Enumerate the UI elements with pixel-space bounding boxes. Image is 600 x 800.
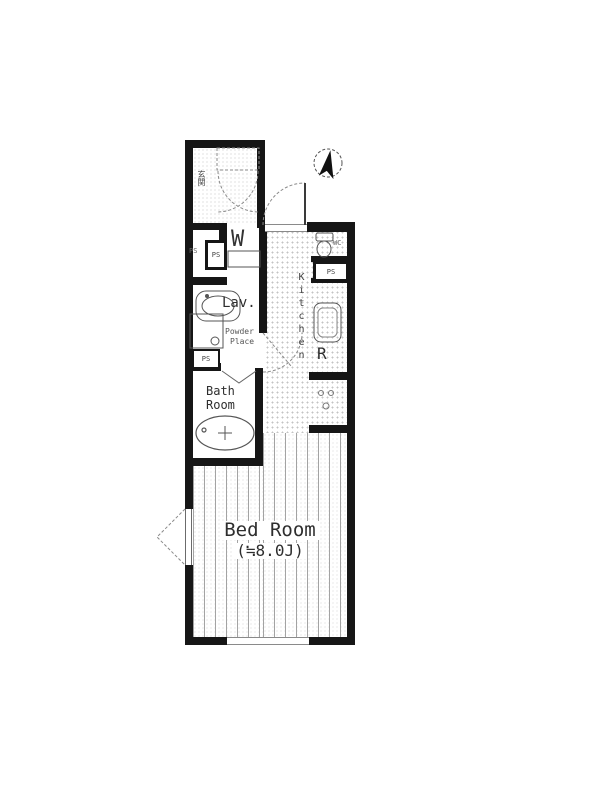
ps-meter-small-label: PS bbox=[189, 248, 197, 255]
north-arrow-icon bbox=[314, 149, 342, 179]
ps-meter-upper-box: PS bbox=[205, 240, 227, 270]
bath-label-line1: Bath bbox=[206, 385, 235, 397]
bath-label-line2: Room bbox=[206, 399, 235, 411]
kitchen-sink-fixture bbox=[314, 303, 341, 342]
bedroom-size-label: (≒8.0J) bbox=[233, 543, 306, 559]
fixture-layer bbox=[0, 0, 600, 800]
entrance-closet-symbol bbox=[217, 148, 259, 212]
bath-folding-door-icon bbox=[222, 371, 256, 383]
washer-niche-label: W bbox=[231, 229, 244, 251]
ps-meter-kitchen-box: PS bbox=[313, 261, 349, 282]
ps-meter-lav-box: PS bbox=[192, 349, 220, 369]
bedroom-name-row: Bed Room bbox=[193, 521, 347, 540]
bathtub-fixture bbox=[196, 416, 254, 450]
floor-plan-document: 玄関 W PS PS Lav. Powder Place PS Bath Roo… bbox=[0, 0, 600, 800]
washer-pan-fixture bbox=[190, 314, 223, 348]
ps-meter-lav-label: PS bbox=[202, 355, 210, 363]
kitchen-label: Kitchen bbox=[296, 272, 306, 363]
powder-label-line1: Powder bbox=[225, 328, 254, 336]
washer-niche-tray bbox=[228, 251, 260, 267]
ps-meter-upper-label: PS bbox=[212, 251, 220, 259]
ps-meter-kitchen-label: PS bbox=[327, 268, 335, 276]
fridge-space-label: R bbox=[317, 346, 327, 362]
powder-label-line2: Place bbox=[230, 338, 254, 346]
bay-window-outline bbox=[157, 509, 185, 565]
water-heater-fixture bbox=[319, 391, 334, 410]
bedroom-size-row: (≒8.0J) bbox=[193, 543, 347, 559]
lavatory-label: Lav. bbox=[222, 296, 256, 310]
entrance-label: 玄関 bbox=[197, 170, 205, 186]
wc-label: WC bbox=[333, 240, 341, 247]
bedroom-name-label: Bed Room bbox=[221, 521, 319, 540]
toilet-fixture bbox=[316, 233, 333, 257]
front-door-swing-icon bbox=[263, 183, 305, 225]
